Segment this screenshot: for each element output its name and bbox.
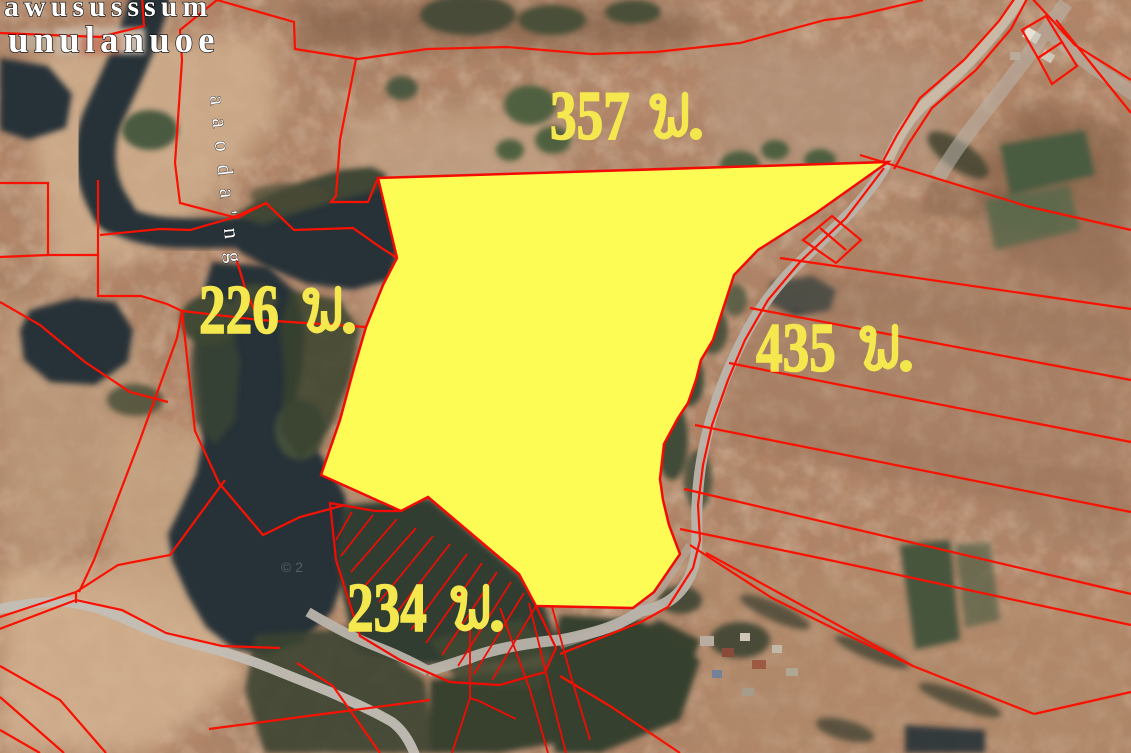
svg-text:226: 226 (199, 272, 279, 349)
svg-text:357: 357 (550, 78, 630, 155)
svg-text:435: 435 (756, 310, 836, 387)
svg-text:© 2: © 2 (281, 559, 303, 575)
svg-text:234: 234 (347, 570, 427, 647)
svg-text:unulanuoe: unulanuoe (8, 20, 220, 61)
